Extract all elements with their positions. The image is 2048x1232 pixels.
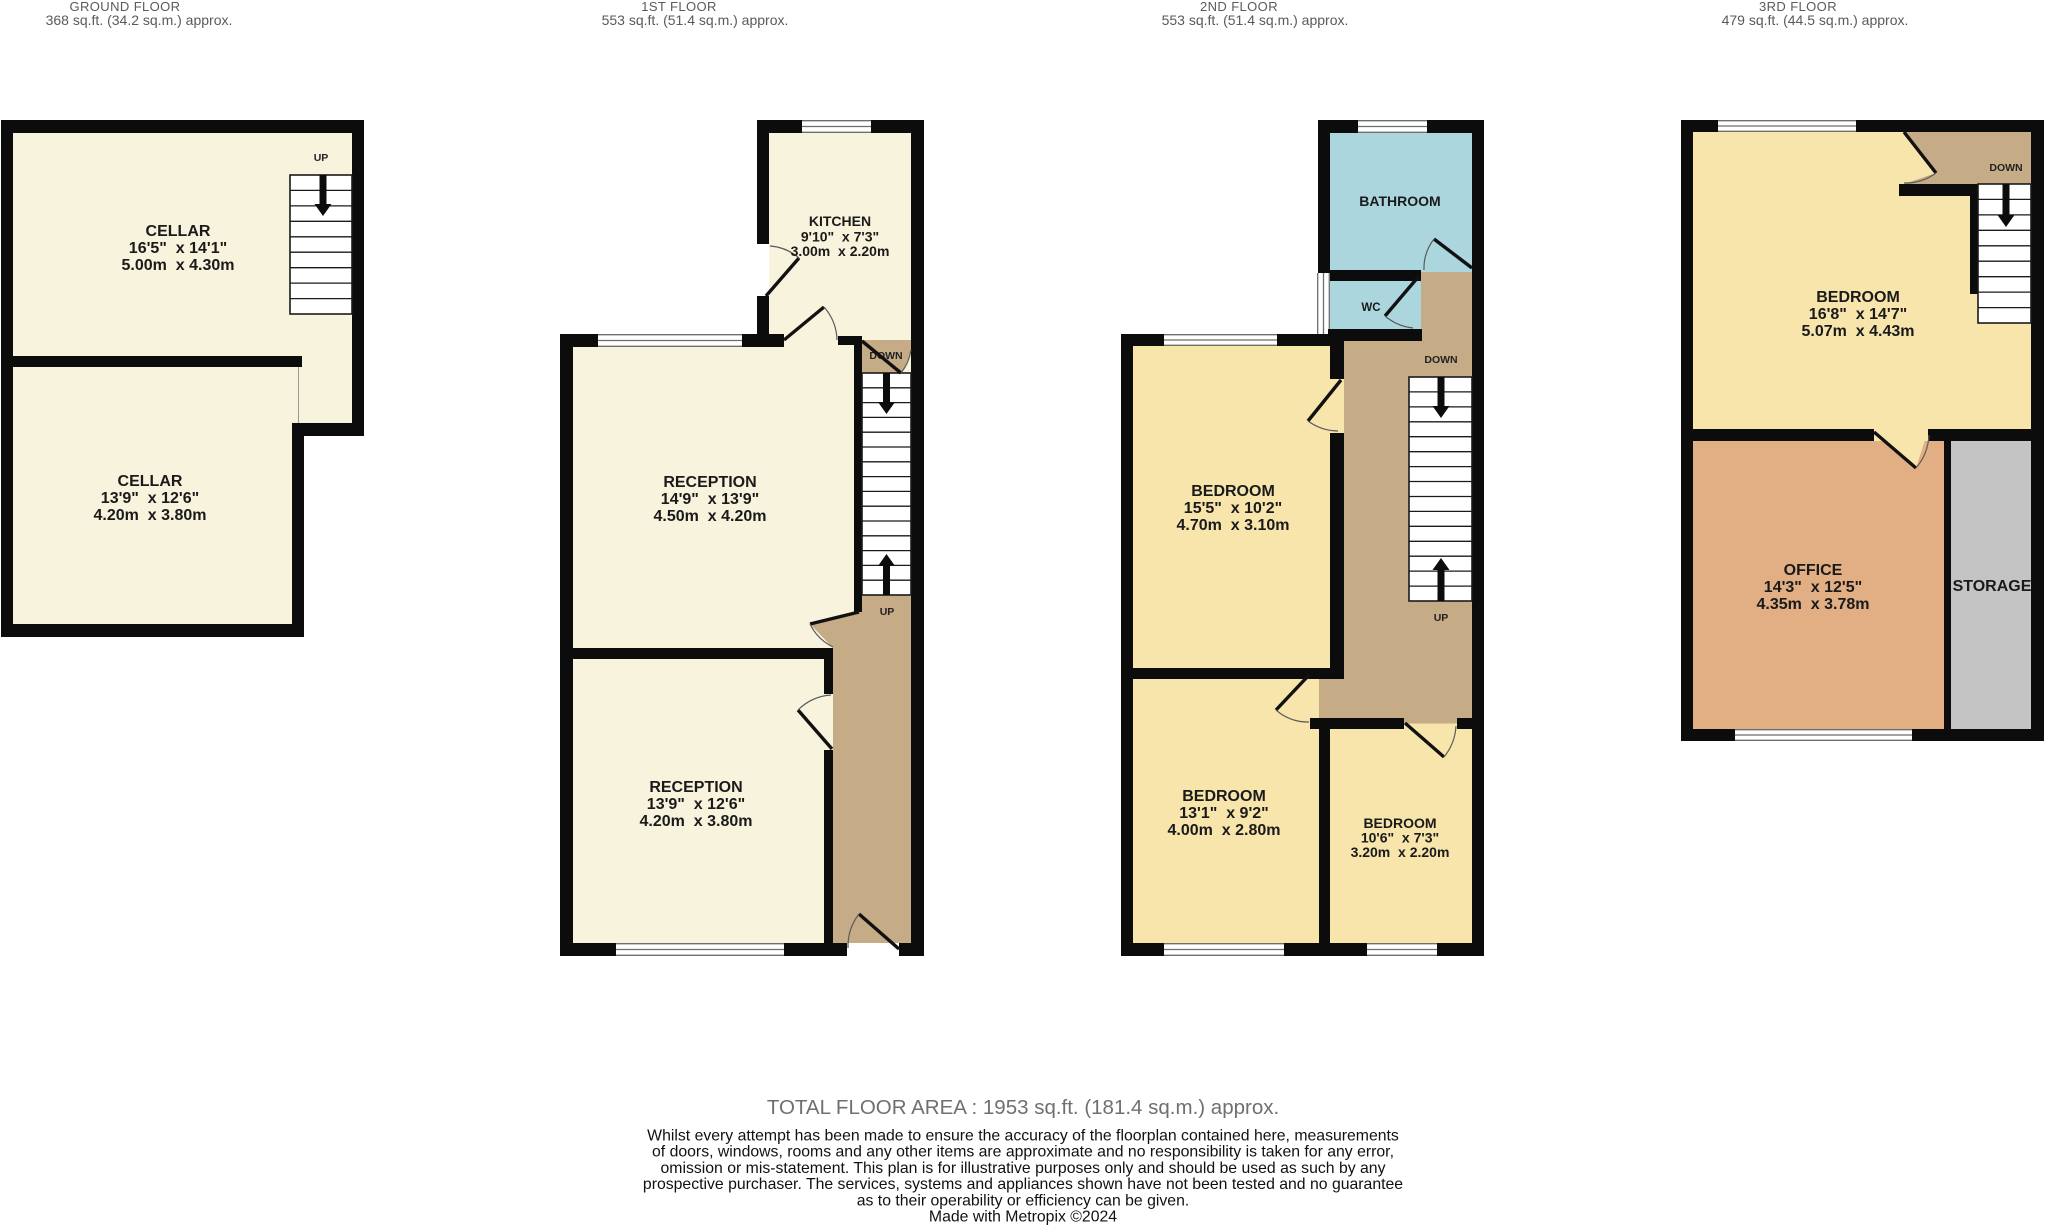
svg-text:BEDROOM: BEDROOM xyxy=(1816,289,1900,306)
svg-text:omission or mis-statement. Thi: omission or mis-statement. This plan is … xyxy=(661,1160,1386,1177)
svg-text:DOWN: DOWN xyxy=(1989,162,2022,174)
svg-text:DOWN: DOWN xyxy=(1424,354,1457,366)
svg-text:UP: UP xyxy=(880,606,895,618)
svg-text:WC: WC xyxy=(1361,302,1380,314)
svg-text:4.35m x 3.78m: 4.35m x 3.78m xyxy=(1757,596,1870,613)
svg-text:4.20m x 3.80m: 4.20m x 3.80m xyxy=(94,507,207,524)
svg-text:13'1" x 9'2": 13'1" x 9'2" xyxy=(1179,805,1269,822)
svg-text:4.50m x 4.20m: 4.50m x 4.20m xyxy=(654,508,767,525)
svg-text:STORAGE: STORAGE xyxy=(1953,578,2032,595)
svg-text:14'9" x 13'9": 14'9" x 13'9" xyxy=(661,491,759,508)
svg-text:5.07m x 4.43m: 5.07m x 4.43m xyxy=(1802,323,1915,340)
svg-text:4.70m x 3.10m: 4.70m x 3.10m xyxy=(1177,517,1290,534)
svg-text:553 sq.ft. (51.4 sq.m.) approx: 553 sq.ft. (51.4 sq.m.) approx. xyxy=(1162,12,1349,28)
svg-text:3.00m x 2.20m: 3.00m x 2.20m xyxy=(791,243,890,259)
svg-text:13'9" x 12'6": 13'9" x 12'6" xyxy=(647,796,745,813)
svg-text:13'9" x 12'6": 13'9" x 12'6" xyxy=(101,490,199,507)
svg-text:BEDROOM: BEDROOM xyxy=(1182,788,1266,805)
svg-text:CELLAR: CELLAR xyxy=(118,473,183,490)
svg-text:of doors, windows, rooms and a: of doors, windows, rooms and any other i… xyxy=(652,1144,1394,1161)
svg-text:14'3" x 12'5": 14'3" x 12'5" xyxy=(1764,579,1862,596)
svg-text:368 sq.ft. (34.2 sq.m.) approx: 368 sq.ft. (34.2 sq.m.) approx. xyxy=(46,12,233,28)
svg-text:UP: UP xyxy=(1434,612,1449,624)
svg-text:5.00m x 4.30m: 5.00m x 4.30m xyxy=(122,257,235,274)
svg-text:Whilst every attempt has been: Whilst every attempt has been made to en… xyxy=(647,1128,1399,1145)
svg-text:UP: UP xyxy=(314,152,329,164)
svg-text:as to their operability or eff: as to their operability or efficiency ca… xyxy=(857,1192,1190,1209)
svg-text:15'5" x 10'2": 15'5" x 10'2" xyxy=(1184,500,1282,517)
svg-text:479 sq.ft. (44.5 sq.m.) approx: 479 sq.ft. (44.5 sq.m.) approx. xyxy=(1722,12,1909,28)
svg-text:BEDROOM: BEDROOM xyxy=(1191,483,1275,500)
svg-text:prospective purchaser. The ser: prospective purchaser. The services, sys… xyxy=(643,1176,1403,1193)
svg-text:553 sq.ft. (51.4 sq.m.) approx: 553 sq.ft. (51.4 sq.m.) approx. xyxy=(602,12,789,28)
svg-text:RECEPTION: RECEPTION xyxy=(649,779,742,796)
svg-text:16'5" x 14'1": 16'5" x 14'1" xyxy=(129,240,227,257)
svg-text:4.20m x 3.80m: 4.20m x 3.80m xyxy=(640,813,753,830)
svg-text:3.20m x 2.20m: 3.20m x 2.20m xyxy=(1351,844,1450,860)
svg-text:KITCHEN: KITCHEN xyxy=(809,213,871,229)
svg-text:BATHROOM: BATHROOM xyxy=(1359,193,1440,209)
svg-text:RECEPTION: RECEPTION xyxy=(663,474,756,491)
svg-text:Made with Metropix ©2024: Made with Metropix ©2024 xyxy=(929,1209,1117,1226)
svg-text:CELLAR: CELLAR xyxy=(146,223,211,240)
svg-text:4.00m x 2.80m: 4.00m x 2.80m xyxy=(1168,822,1281,839)
svg-text:TOTAL FLOOR AREA : 1953 sq.ft.: TOTAL FLOOR AREA : 1953 sq.ft. (181.4 sq… xyxy=(767,1096,1279,1119)
svg-text:16'8" x 14'7": 16'8" x 14'7" xyxy=(1809,306,1907,323)
svg-text:OFFICE: OFFICE xyxy=(1784,562,1843,579)
